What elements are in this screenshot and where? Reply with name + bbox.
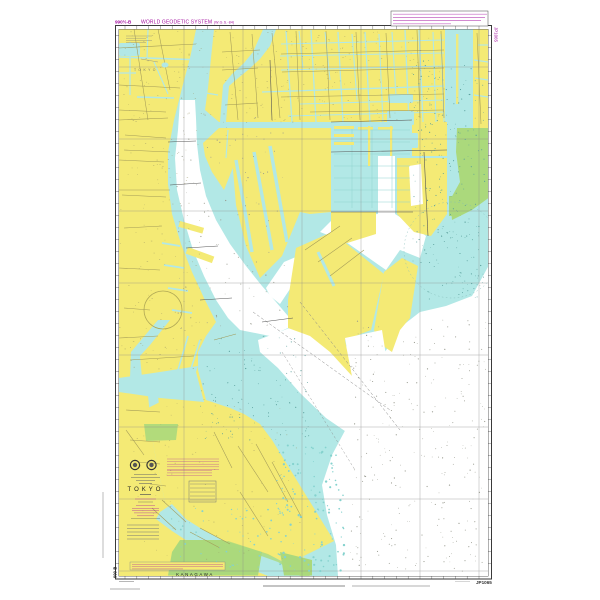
svg-text:JP1065: JP1065: [494, 27, 499, 42]
svg-text:990½-B: 990½-B: [115, 19, 132, 25]
svg-text:JP1065: JP1065: [476, 580, 492, 585]
svg-text:990-B: 990-B: [113, 567, 118, 578]
svg-text:TOKYO: TOKYO: [128, 487, 164, 493]
svg-text:KANAGAWA: KANAGAWA: [176, 572, 214, 577]
svg-text:TOKYO: TOKYO: [134, 68, 158, 72]
